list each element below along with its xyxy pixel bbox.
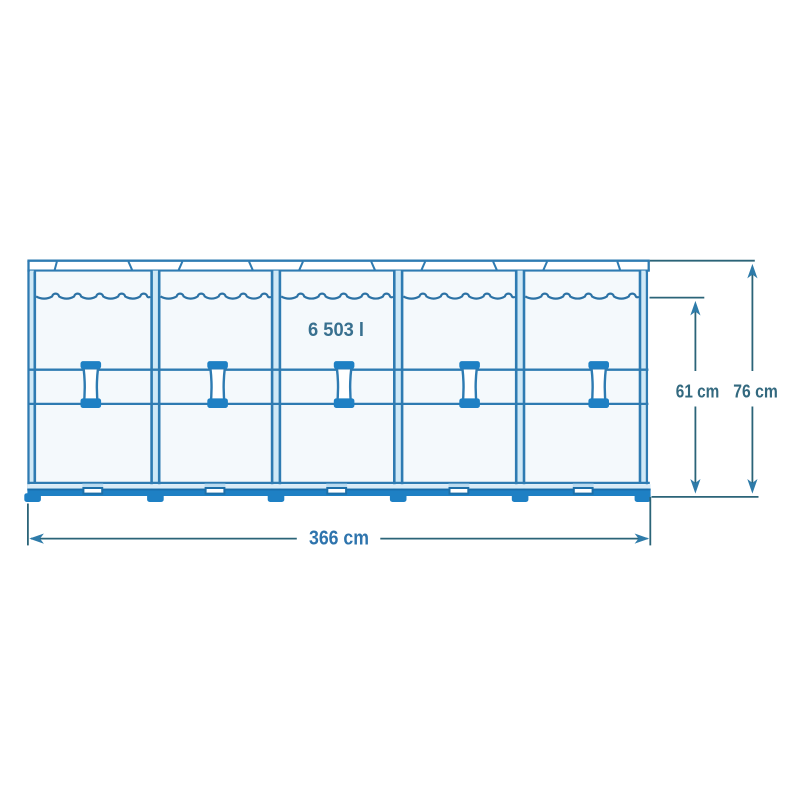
svg-text:76 cm: 76 cm: [733, 381, 778, 402]
svg-text:6 503 l: 6 503 l: [308, 320, 364, 341]
svg-text:366 cm: 366 cm: [309, 527, 369, 549]
svg-text:61 cm: 61 cm: [676, 381, 720, 402]
